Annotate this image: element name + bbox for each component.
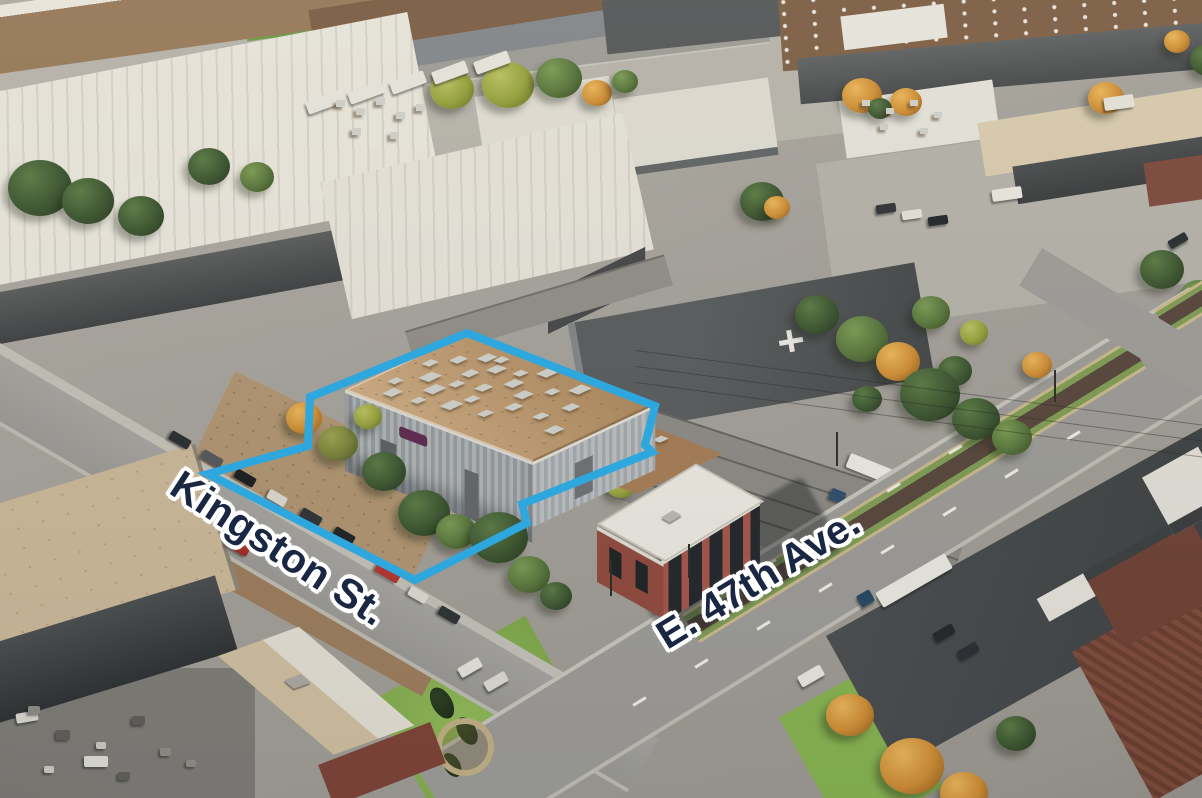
rooftop-hvac-unit [440,400,464,410]
rooftop-hvac-unit [474,383,493,391]
utility-pole [688,544,690,578]
utility-pole [610,560,612,596]
rooftop-hvac-unit [568,384,592,394]
rooftop-hvac-unit [504,403,523,411]
window [636,559,648,594]
graffiti [399,426,427,448]
rooftop-hvac-unit [544,388,560,395]
rooftop-hvac-unit [536,368,560,378]
planter-ring [436,718,494,776]
rooftop-hvac-unit [448,380,466,388]
east-maroon-small [1143,153,1202,207]
rooftop-hvac-unit [544,425,565,434]
rooftop-hvac-unit [512,370,528,377]
utility-pole [836,432,838,466]
rooftop-hvac-unit [486,365,507,374]
rooftop-unit [661,510,682,522]
rooftop-hvac-unit [463,395,481,403]
rooftop-hvac-unit [477,410,495,418]
rooftop-hvac-unit [449,355,468,363]
rooftop-hvac-unit [561,403,580,411]
rooftop-hvac-unit [418,372,442,382]
rooftop-hvac-unit [382,388,403,397]
bay-door [380,439,396,491]
rooftop-hvac-unit [532,412,550,420]
rooftop-hvac-unit [422,384,446,394]
rooftop-hvac-unit [410,397,426,404]
rooftop-unit [284,674,311,689]
bay-door [575,455,593,499]
rooftop-hvac-unit [461,369,480,377]
utility-pole [1054,370,1056,402]
rooftop-hvac-unit [421,359,439,367]
rooftop-hvac-unit [513,390,534,399]
rooftop-hvac-unit [503,379,524,388]
aerial-photo: Kingston St. E. 47th Ave. [0,0,1202,798]
rooftop-hvac-unit [387,377,403,384]
bay-door [465,469,479,522]
